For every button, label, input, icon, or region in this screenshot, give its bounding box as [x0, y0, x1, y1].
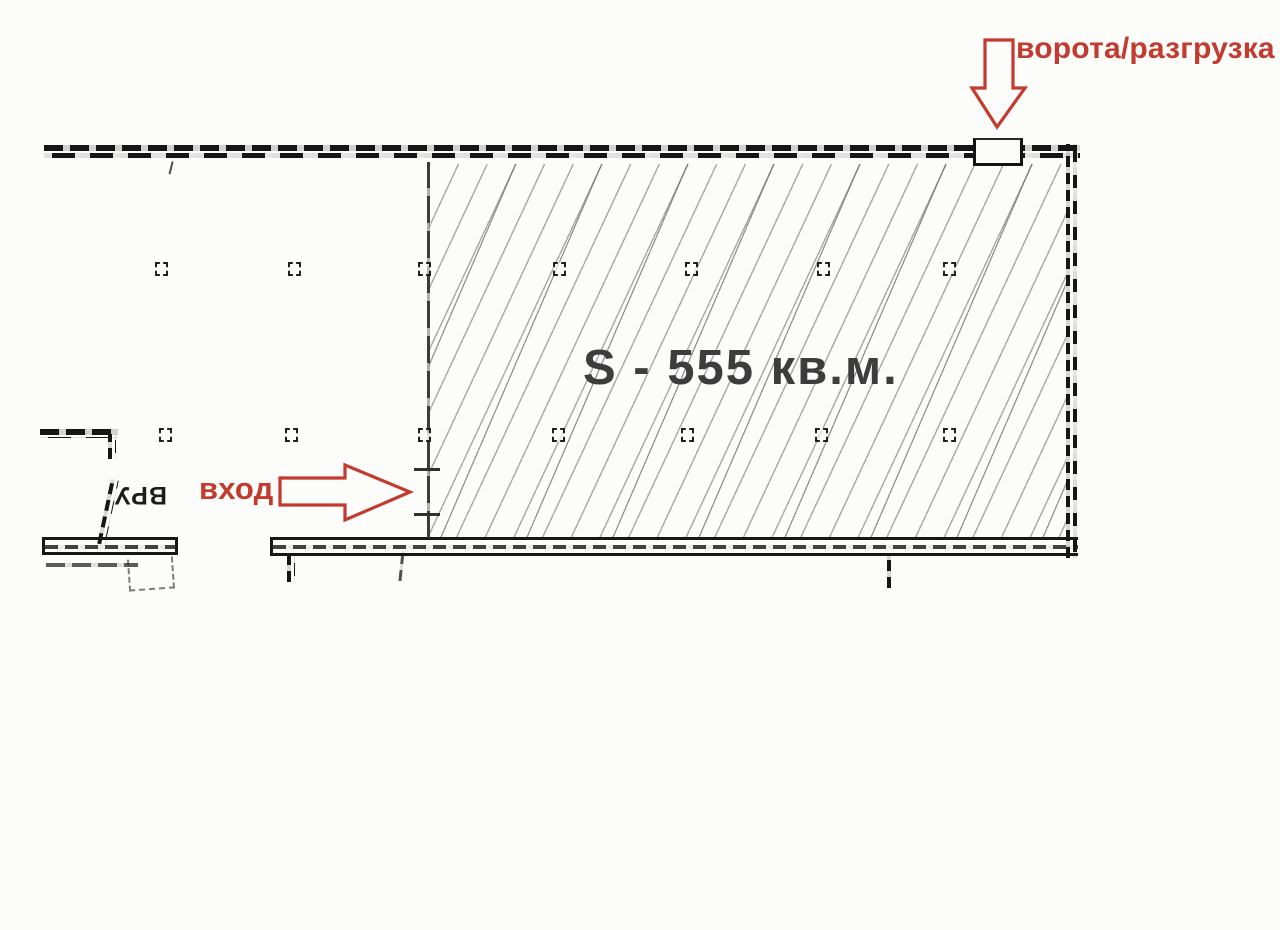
column-marker	[815, 428, 828, 442]
column-marker	[418, 428, 431, 442]
entrance-arrow-right-icon	[279, 463, 413, 521]
area-label: S - 555 кв.м.	[583, 340, 899, 396]
column-marker	[943, 262, 956, 276]
column-marker	[285, 428, 298, 442]
column-marker	[943, 428, 956, 442]
entrance-label: вход	[199, 471, 274, 507]
column-marker	[288, 262, 301, 276]
column-marker	[817, 262, 830, 276]
gate-label: ворота/разгрузка	[1016, 32, 1275, 66]
vru-label: ВРУ	[114, 480, 167, 509]
column-marker	[685, 262, 698, 276]
column-marker	[155, 262, 168, 276]
column-marker	[681, 428, 694, 442]
column-marker	[553, 262, 566, 276]
floor-plan: ворота/разгрузка вход S - 555 кв.м. ВРУ	[0, 0, 1280, 930]
column-marker	[552, 428, 565, 442]
column-marker	[418, 262, 431, 276]
columns-layer	[0, 0, 1280, 930]
column-marker	[159, 428, 172, 442]
